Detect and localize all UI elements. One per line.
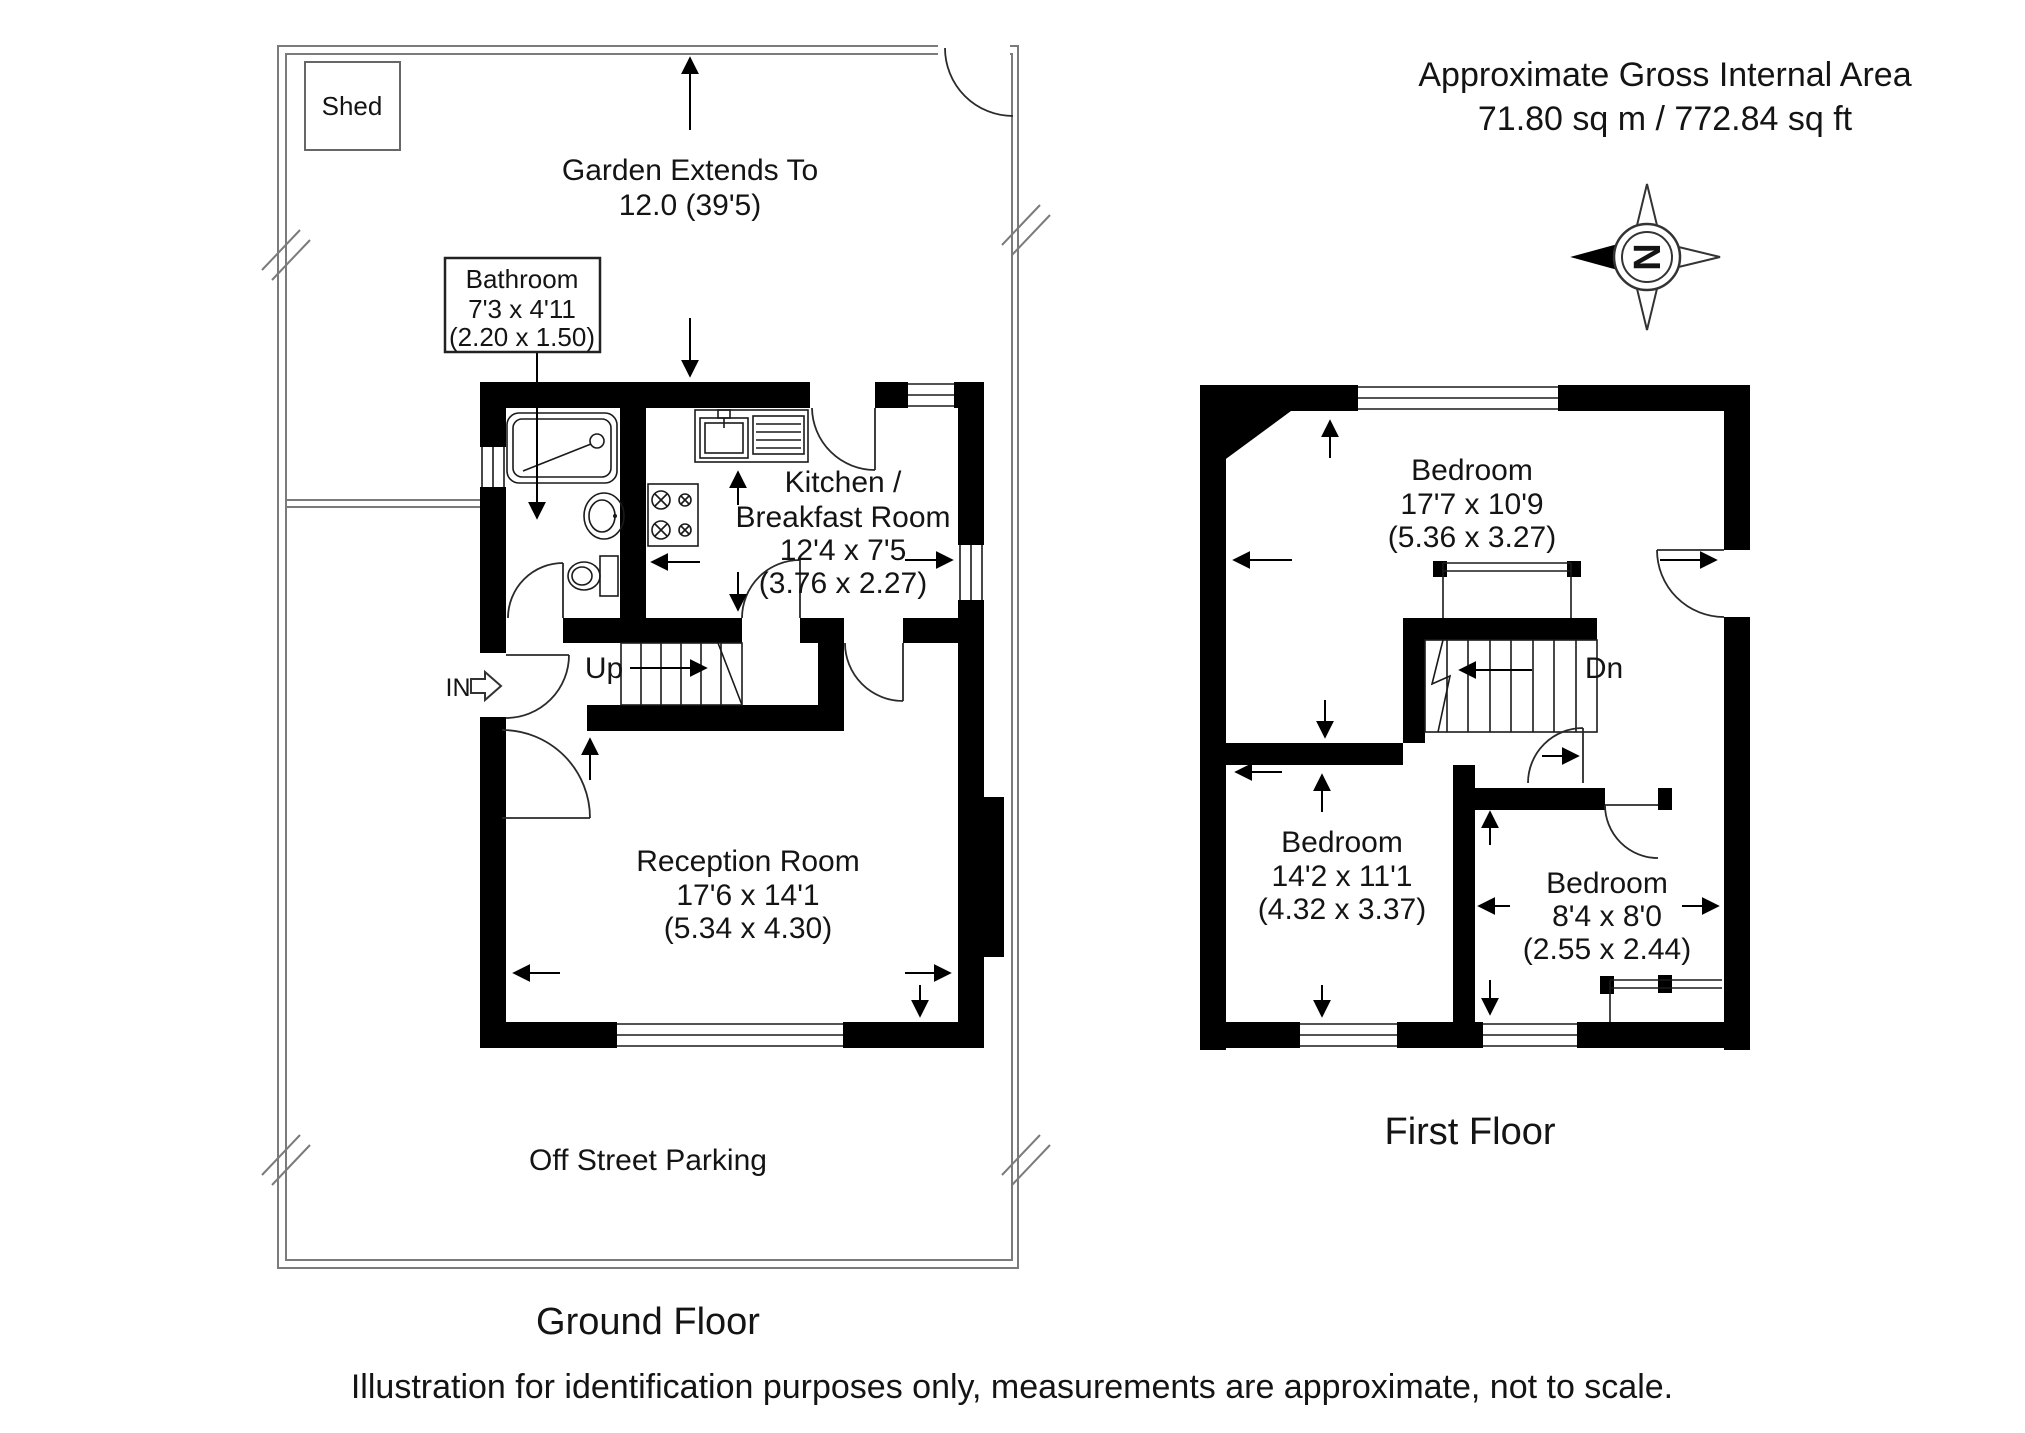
bathroom-imperial: 7'3 x 4'11 <box>468 294 576 324</box>
reception-door-arc <box>502 730 590 818</box>
kitchen-metric: (3.76 x 2.27) <box>759 567 927 600</box>
ground-floor-plan: Shed Garden Extends To 12.0 (39'5) <box>262 40 1050 1343</box>
garden-boundary <box>262 40 1050 1268</box>
dn-label: Dn <box>1585 652 1623 685</box>
kitchen-window <box>908 384 954 406</box>
bedroom2-imperial: 14'2 x 11'1 <box>1271 860 1412 893</box>
up-label: Up <box>585 652 623 685</box>
bedroom2-window <box>1300 1024 1397 1046</box>
toilet-icon <box>568 556 618 596</box>
shed-label: Shed <box>322 91 383 121</box>
bedroom3-window <box>1483 1024 1577 1046</box>
bedroom2-metric: (4.32 x 3.37) <box>1258 893 1426 926</box>
reception-name: Reception Room <box>636 845 859 878</box>
reception-label: Reception Room 17'6 x 14'1 (5.34 x 4.30) <box>636 845 859 945</box>
garden-label-line2: 12.0 (39'5) <box>619 189 762 222</box>
reception-metric: (5.34 x 4.30) <box>664 912 832 945</box>
bedroom3-door-arc <box>1605 805 1658 858</box>
front-door-arc <box>506 655 569 718</box>
reception-imperial: 17'6 x 14'1 <box>676 879 819 912</box>
bedroom2-label: Bedroom 14'2 x 11'1 (4.32 x 3.37) <box>1258 826 1426 926</box>
shed: Shed <box>305 62 400 150</box>
bedroom3-imperial: 8'4 x 8'0 <box>1552 900 1662 933</box>
staircase-up: Up <box>585 643 742 705</box>
bedroom1-window <box>1358 387 1558 409</box>
floorplan-page: Approximate Gross Internal Area 71.80 sq… <box>0 0 2025 1433</box>
bedroom1-imperial: 17'7 x 10'9 <box>1400 488 1543 521</box>
gross-area-title: Approximate Gross Internal Area <box>1418 56 1911 94</box>
kitchen-sink-icon <box>695 410 808 462</box>
bedroom2-name: Bedroom <box>1281 826 1403 859</box>
parking-label: Off Street Parking <box>529 1144 767 1177</box>
bathroom-callout: Bathroom 7'3 x 4'11 (2.20 x 1.50) <box>445 258 600 352</box>
entrance: IN <box>446 672 502 702</box>
bathroom-metric: (2.20 x 1.50) <box>449 322 595 352</box>
first-floor-doors <box>1528 550 1724 858</box>
bedroom3-label: Bedroom 8'4 x 8'0 (2.55 x 2.44) <box>1523 867 1691 966</box>
bathtub-icon <box>507 413 617 483</box>
kitchen-name-line1: Kitchen / <box>785 466 902 499</box>
reception-window <box>617 1024 843 1046</box>
floorplan-drawing: Approximate Gross Internal Area 71.80 sq… <box>0 0 2025 1433</box>
bedroom3-metric: (2.55 x 2.44) <box>1523 933 1691 966</box>
ground-floor-title: Ground Floor <box>536 1301 760 1343</box>
bedroom1-metric: (5.36 x 3.27) <box>1388 521 1556 554</box>
reception-kitchen-door-arc <box>845 643 903 701</box>
first-floor-plan: Dn Bedroom 17'7 x 10'9 (5.36 x 3.27) <box>1200 385 1750 1153</box>
bathroom-window <box>482 447 504 487</box>
kitchen-imperial: 12'4 x 7'5 <box>780 534 907 567</box>
garden-label-line1: Garden Extends To <box>562 154 818 187</box>
header: Approximate Gross Internal Area 71.80 sq… <box>1418 56 1911 138</box>
bedroom1-label: Bedroom 17'7 x 10'9 (5.36 x 3.27) <box>1388 454 1556 554</box>
entrance-arrow-icon <box>471 672 501 700</box>
boundary-break-mark <box>1002 1135 1050 1185</box>
back-door-arc <box>812 408 875 470</box>
staircase-down: Dn <box>1425 640 1623 732</box>
stair-closet <box>1443 563 1571 618</box>
kitchen-name-line2: Breakfast Room <box>735 501 950 534</box>
compass-letter: N <box>1627 243 1669 270</box>
bedroom1-name: Bedroom <box>1411 454 1533 487</box>
kitchen-label: Kitchen / Breakfast Room 12'4 x 7'5 (3.7… <box>735 466 950 600</box>
first-floor-title: First Floor <box>1385 1111 1556 1153</box>
sink-icon <box>584 493 624 539</box>
stove-icon <box>648 484 698 546</box>
chimney-breast <box>984 797 1004 957</box>
boundary-break-mark <box>1002 205 1050 255</box>
bathroom-door-arc <box>508 563 563 618</box>
bedroom3-name: Bedroom <box>1546 867 1668 900</box>
kitchen-side-window <box>960 545 982 600</box>
ground-floor-walls <box>480 382 1004 1048</box>
bathroom-fixtures <box>507 413 624 596</box>
compass-icon: N <box>1574 184 1720 330</box>
disclaimer-text: Illustration for identification purposes… <box>351 1368 1673 1406</box>
gross-area-value: 71.80 sq m / 772.84 sq ft <box>1478 100 1853 138</box>
bathroom-name: Bathroom <box>466 264 579 294</box>
in-label: IN <box>446 674 471 702</box>
